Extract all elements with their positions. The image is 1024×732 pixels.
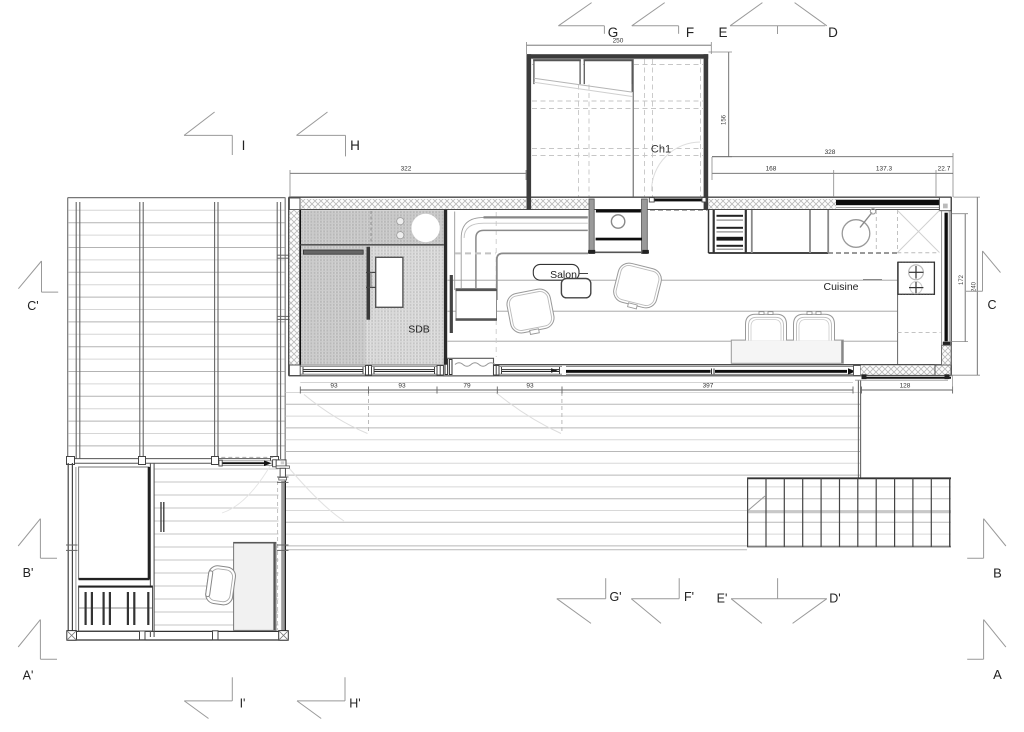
svg-text:I: I	[242, 138, 246, 153]
svg-text:D': D'	[829, 592, 840, 606]
svg-text:137.3: 137.3	[876, 166, 893, 173]
svg-text:G': G'	[609, 590, 621, 604]
svg-text:E: E	[718, 25, 727, 40]
svg-text:C': C'	[27, 299, 38, 313]
svg-text:240: 240	[971, 281, 977, 292]
svg-text:22.7: 22.7	[938, 166, 951, 173]
svg-text:79: 79	[463, 383, 471, 390]
svg-text:G: G	[608, 25, 619, 40]
svg-text:A': A'	[23, 669, 34, 683]
svg-text:B': B'	[23, 566, 34, 580]
svg-text:93: 93	[330, 383, 338, 390]
svg-text:128: 128	[900, 383, 911, 390]
svg-text:D: D	[828, 25, 838, 40]
svg-text:322: 322	[401, 166, 412, 173]
svg-text:397: 397	[703, 383, 714, 390]
svg-text:Ch1: Ch1	[651, 144, 671, 156]
svg-text:168: 168	[766, 166, 777, 173]
svg-text:F: F	[686, 25, 694, 40]
svg-text:Cuisine: Cuisine	[823, 281, 858, 293]
svg-text:93: 93	[526, 383, 534, 390]
svg-text:172: 172	[959, 274, 965, 285]
svg-text:H: H	[350, 138, 360, 153]
svg-text:B: B	[993, 566, 1002, 581]
svg-text:F': F'	[684, 590, 694, 604]
svg-text:E': E'	[717, 592, 728, 606]
svg-text:328: 328	[825, 149, 836, 156]
svg-text:156: 156	[722, 114, 728, 125]
svg-text:93: 93	[398, 383, 406, 390]
svg-text:SDB: SDB	[408, 324, 430, 336]
svg-text:I': I'	[240, 697, 246, 711]
svg-text:H': H'	[349, 697, 360, 711]
svg-text:C: C	[987, 298, 996, 312]
svg-text:A: A	[993, 667, 1002, 682]
